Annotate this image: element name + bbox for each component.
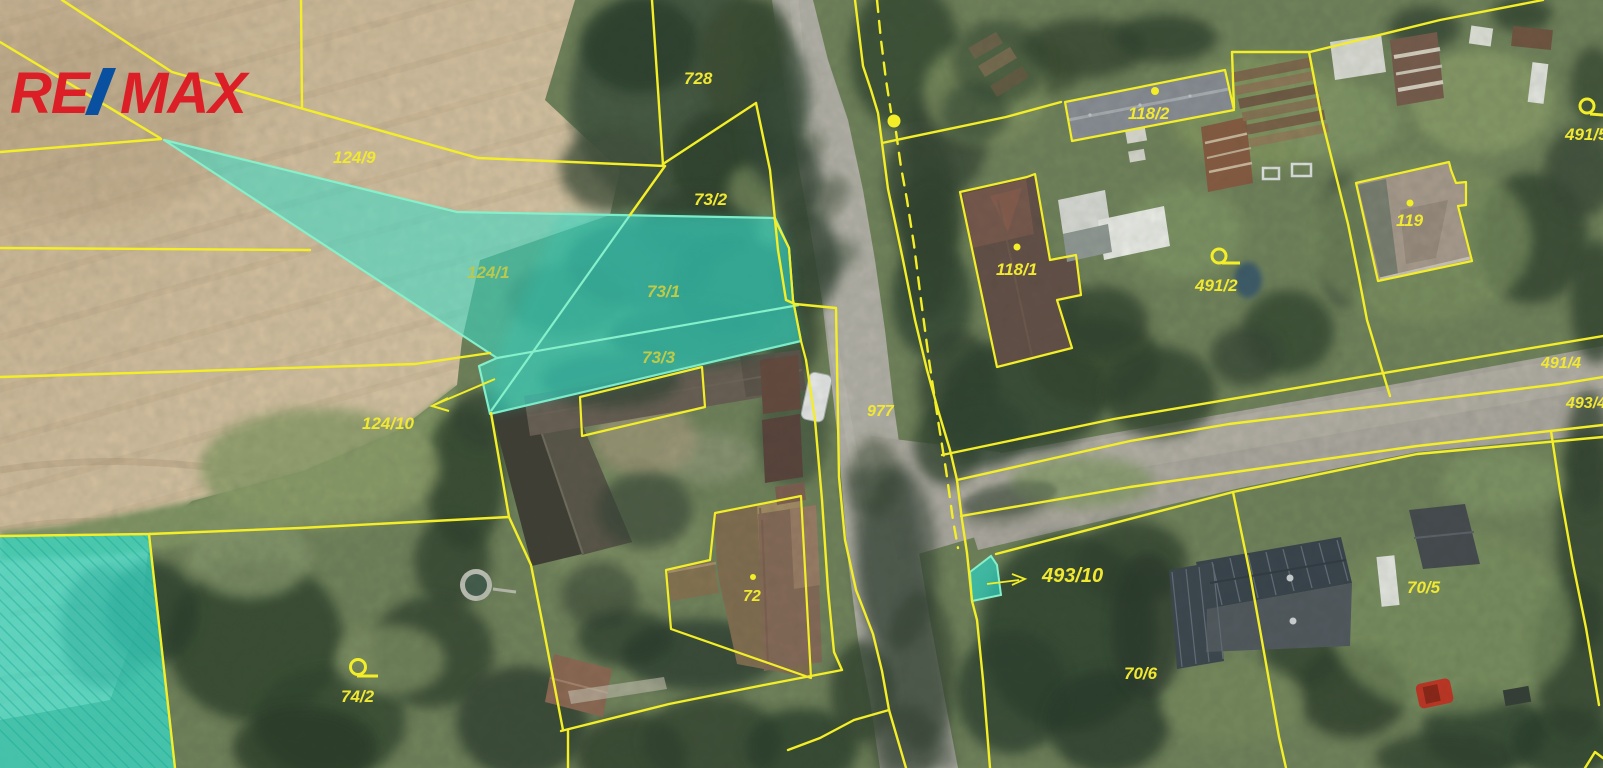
svg-text:73/2: 73/2 [694,190,728,209]
svg-text:124/10: 124/10 [362,414,415,433]
svg-text:70/5: 70/5 [1407,578,1441,597]
svg-text:73/1: 73/1 [647,282,680,301]
svg-text:493/4: 493/4 [1565,395,1603,412]
svg-text:124/9: 124/9 [333,148,376,167]
svg-text:70/6: 70/6 [1124,664,1158,683]
svg-text:119: 119 [1396,211,1424,230]
svg-text:491/4: 491/4 [1540,355,1581,372]
svg-text:491/2: 491/2 [1194,276,1238,295]
svg-text:491/5: 491/5 [1564,125,1603,144]
svg-text:124/1: 124/1 [467,263,510,282]
svg-text:74/2: 74/2 [341,687,375,706]
svg-text:72: 72 [743,588,761,605]
svg-text:728: 728 [684,69,713,88]
svg-text:73/3: 73/3 [642,348,676,367]
svg-text:118/1: 118/1 [996,260,1037,279]
svg-text:493/10: 493/10 [1041,565,1103,587]
svg-text:977: 977 [867,403,895,420]
svg-text:118/2: 118/2 [1128,104,1170,123]
